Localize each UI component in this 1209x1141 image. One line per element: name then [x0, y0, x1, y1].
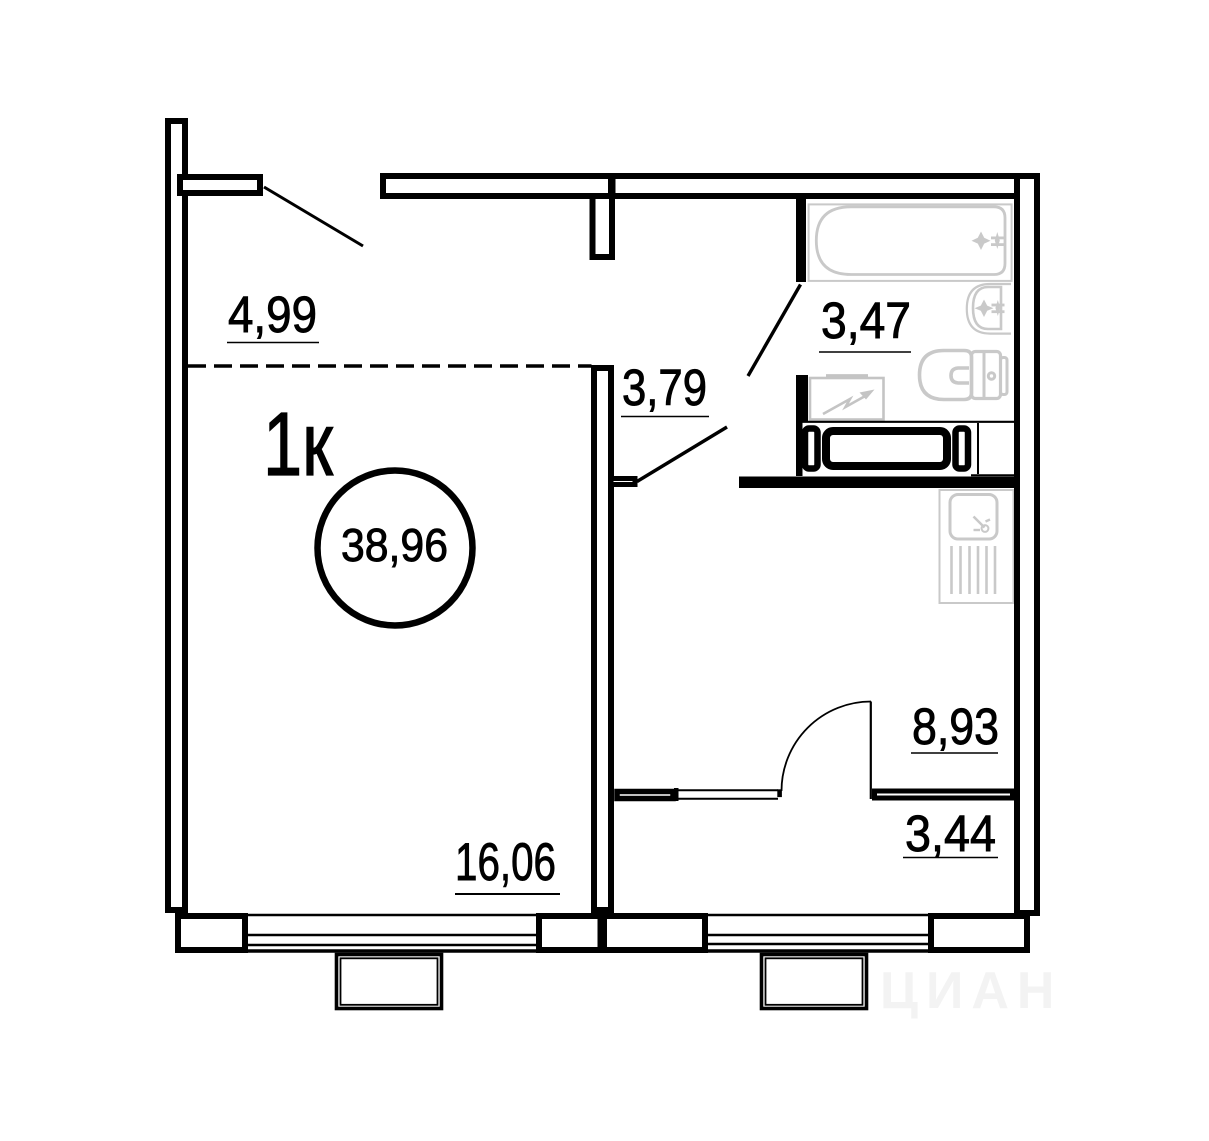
svg-text:8,93: 8,93 [912, 698, 999, 755]
svg-text:4,99: 4,99 [228, 286, 317, 343]
svg-text:3,44: 3,44 [905, 805, 996, 862]
svg-text:3,79: 3,79 [622, 359, 707, 416]
svg-text:16,06: 16,06 [455, 833, 556, 892]
svg-text:3,47: 3,47 [821, 292, 911, 349]
svg-text:ЦИАН: ЦИАН [880, 962, 1062, 1020]
svg-text:38,96: 38,96 [341, 519, 448, 571]
svg-text:1к: 1к [263, 395, 333, 495]
